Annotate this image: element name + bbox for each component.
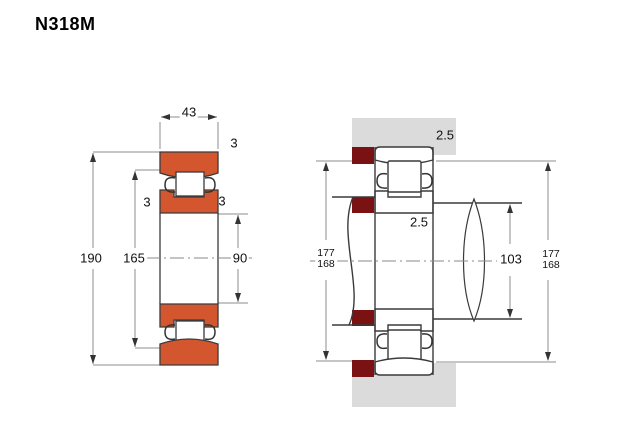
dim-abutment-left-bottom: 168 bbox=[317, 258, 335, 270]
dim-abutment-right: 177 168 bbox=[540, 249, 562, 271]
shaft-shoulder-bottom bbox=[352, 310, 374, 326]
dim-width-43: 43 bbox=[180, 106, 198, 119]
dim-shaft-fillet-radius: 2.5 bbox=[410, 216, 428, 229]
dim-housing-fillet-radius: 2.5 bbox=[436, 129, 454, 142]
dim-abutment-right-bottom: 168 bbox=[542, 259, 560, 271]
dim-outer-diameter-190: 190 bbox=[78, 252, 104, 265]
housing-shoulder-top bbox=[352, 147, 374, 164]
housing-shoulder-bottom bbox=[352, 360, 374, 377]
cross-section-view bbox=[90, 114, 252, 365]
roller-top-half bbox=[176, 172, 204, 196]
bearing-technical-drawing bbox=[0, 0, 640, 440]
shaft-break-line-right bbox=[464, 199, 485, 321]
shaft-shoulder-top bbox=[352, 197, 374, 213]
dim-abutment-left: 177 168 bbox=[315, 248, 337, 270]
dim-shaft-abutment-103: 103 bbox=[498, 253, 524, 266]
roller-top bbox=[388, 161, 421, 192]
dim-chamfer-left: 3 bbox=[143, 196, 150, 209]
inner-ring-bottom-section bbox=[375, 309, 433, 331]
roller-bottom bbox=[388, 330, 421, 361]
inner-ring-top-section bbox=[375, 191, 433, 213]
dim-chamfer-right: 3 bbox=[218, 195, 225, 208]
dim-bore-diameter-90: 90 bbox=[231, 252, 249, 265]
outer-ring-bottom-half bbox=[160, 339, 218, 365]
dim-shoulder-diameter-165: 165 bbox=[121, 252, 147, 265]
dim-chamfer-top: 3 bbox=[230, 137, 237, 150]
outer-ring-bottom-section bbox=[375, 358, 433, 375]
